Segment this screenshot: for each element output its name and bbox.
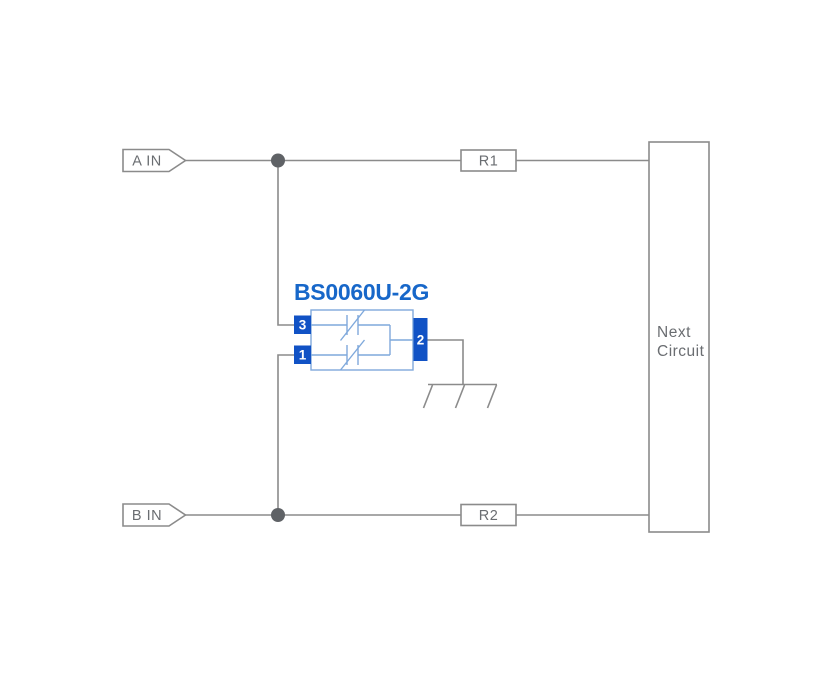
junction-dot-b xyxy=(271,508,285,522)
component-bs0060u-2g: BS0060U-2G xyxy=(294,279,429,370)
ground-hatch xyxy=(424,385,433,408)
net-label-a-in: A IN xyxy=(123,150,186,172)
wire-pin1-to-b xyxy=(278,355,294,515)
net-label-b-in: B IN xyxy=(123,504,186,526)
next-circuit-line2: Circuit xyxy=(657,343,705,360)
next-circuit-line1: Next xyxy=(657,324,691,341)
resistor-r2: R2 xyxy=(461,505,516,526)
schematic-svg: A IN B IN R1 R2 Next Circuit BS0060U-2G xyxy=(0,0,832,675)
component-title: BS0060U-2G xyxy=(294,279,429,305)
resistor-r2-label: R2 xyxy=(479,508,499,524)
pin-1: 1 xyxy=(294,346,311,365)
resistor-r1-label: R1 xyxy=(479,154,499,170)
junction-dot-a xyxy=(271,154,285,168)
net-label-a-in-text: A IN xyxy=(132,154,161,170)
pin-1-number: 1 xyxy=(299,348,307,363)
net-label-b-in-text: B IN xyxy=(132,508,162,524)
pin-3: 3 xyxy=(294,316,311,335)
ground-icon xyxy=(424,385,498,409)
pin-3-number: 3 xyxy=(299,318,307,333)
ground-hatch xyxy=(456,385,465,408)
wire-a-to-pin3 xyxy=(278,161,294,326)
pin-2-number: 2 xyxy=(417,333,425,348)
wire-pin2-to-ground xyxy=(428,340,464,385)
pin-2: 2 xyxy=(414,318,428,361)
next-circuit-block: Next Circuit xyxy=(649,142,709,532)
ground-hatch xyxy=(488,385,497,408)
circuit-diagram: A IN B IN R1 R2 Next Circuit BS0060U-2G xyxy=(0,0,832,675)
resistor-r1: R1 xyxy=(461,150,516,171)
